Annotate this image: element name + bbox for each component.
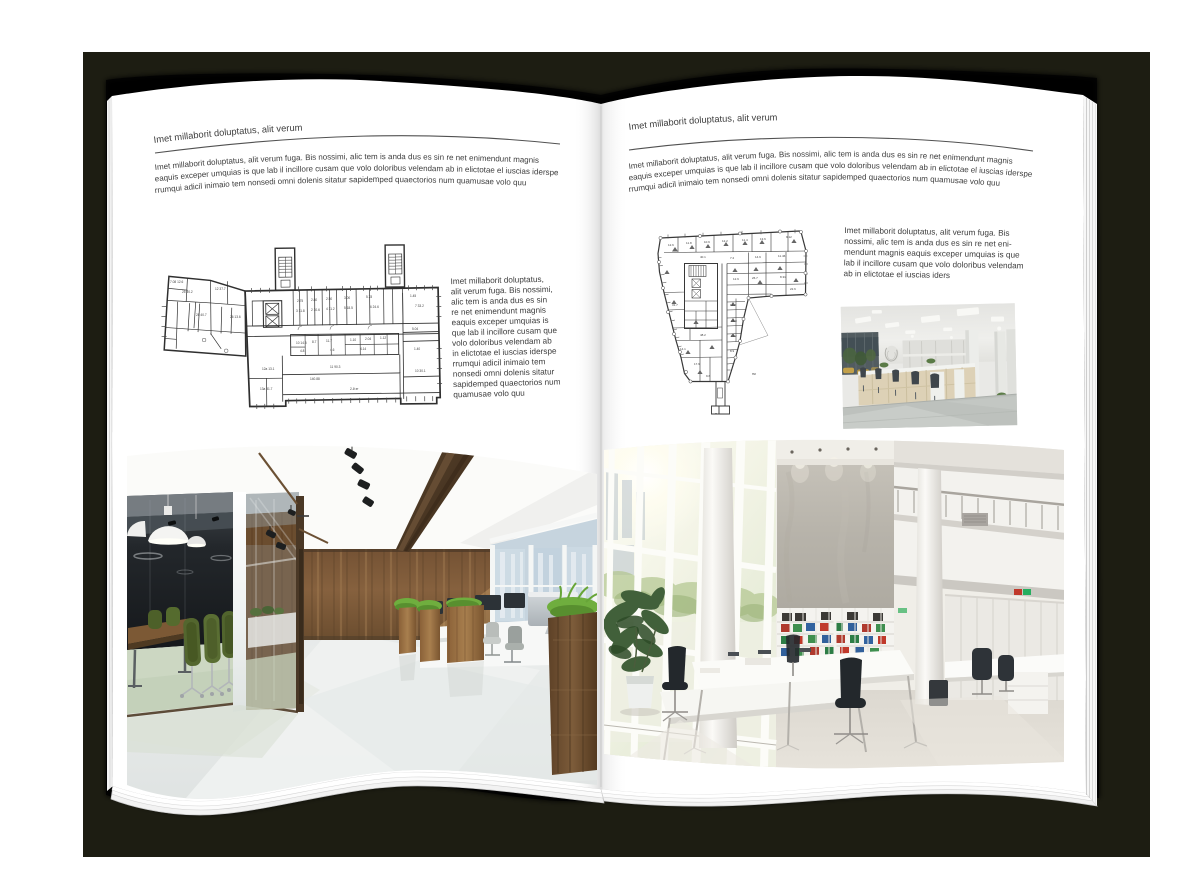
svg-text:40.1: 40.1 [700,255,706,259]
svg-text:16.2: 16.2 [730,303,736,307]
svg-text:28 40.7: 28 40.7 [196,313,207,317]
svg-text:14.1: 14.1 [680,347,686,351]
svg-text:9.6: 9.6 [706,374,711,378]
svg-text:8.7: 8.7 [312,340,317,344]
svg-text:5.04: 5.04 [412,327,418,331]
svg-text:48.2: 48.2 [700,333,706,337]
svg-text:26 13.6: 26 13.6 [230,315,241,319]
svg-text:12.2: 12.2 [722,239,728,243]
svg-text:15.8: 15.8 [731,319,737,323]
svg-text:11.46: 11.46 [778,254,786,258]
svg-text:10 30.1: 10 30.1 [415,369,426,373]
svg-text:3.00: 3.00 [344,296,350,300]
svg-text:12.6: 12.6 [668,243,674,247]
svg-text:ab in elictotae el iuscias ide: ab in elictotae el iuscias iders [844,269,951,280]
svg-text:2-й эт: 2-й эт [350,387,359,391]
svg-text:4.8: 4.8 [300,349,305,353]
svg-text:8.9: 8.9 [730,349,735,353]
svg-text:1.40: 1.40 [414,347,420,351]
svg-text:1.10: 1.10 [350,338,356,342]
svg-text:22.6: 22.6 [790,287,796,291]
svg-text:2.80: 2.80 [311,298,317,302]
svg-text:10 14.5: 10 14.5 [296,341,307,345]
svg-text:12 37.7: 12 37.7 [215,287,226,291]
svg-text:140.88: 140.88 [310,377,320,381]
svg-text:12a 13.1: 12a 13.1 [262,367,275,371]
svg-text:5 18.5: 5 18.5 [344,306,353,310]
svg-text:25 30.2: 25 30.2 [182,290,193,294]
svg-text:1.45: 1.45 [410,294,416,298]
svg-text:4.6: 4.6 [330,348,335,352]
svg-text:2 10.6: 2 10.6 [311,308,320,312]
svg-text:2.75: 2.75 [297,299,303,303]
svg-text:1.12: 1.12 [380,336,386,340]
svg-text:10.9: 10.9 [704,240,710,244]
svg-text:3 11.8: 3 11.8 [296,309,305,313]
svg-text:11 90.3: 11 90.3 [330,365,341,369]
svg-text:11.4: 11.4 [742,238,748,242]
svg-text:8.31: 8.31 [780,275,786,279]
svg-text:7.2: 7.2 [730,256,735,260]
svg-text:2.04: 2.04 [365,337,371,341]
svg-text:13.6: 13.6 [760,237,766,241]
svg-text:5.78: 5.78 [366,295,372,299]
svg-text:13a 31.7: 13a 31.7 [260,387,273,391]
svg-text:11.7: 11.7 [326,339,332,343]
svg-text:26.7: 26.7 [752,276,758,280]
svg-text:11.2: 11.2 [731,334,737,338]
svg-text:12.9: 12.9 [733,277,739,281]
svg-text:4.14: 4.14 [360,347,366,351]
svg-text:11.8: 11.8 [686,241,692,245]
svg-text:2.50: 2.50 [326,297,332,301]
svg-text:6 24.6: 6 24.6 [370,305,379,309]
svg-text:quamusae volo quu: quamusae volo quu [453,389,525,400]
svg-text:14.9: 14.9 [755,255,761,259]
svg-text:17.9: 17.9 [694,362,700,366]
svg-text:гм: гм [752,372,756,376]
svg-text:7.08 12.6: 7.08 12.6 [170,280,184,284]
svg-text:4 11.2: 4 11.2 [326,307,335,311]
svg-text:9.12: 9.12 [786,235,792,239]
svg-text:7 33.2: 7 33.2 [415,304,424,308]
svg-text:31.7: 31.7 [672,303,678,307]
